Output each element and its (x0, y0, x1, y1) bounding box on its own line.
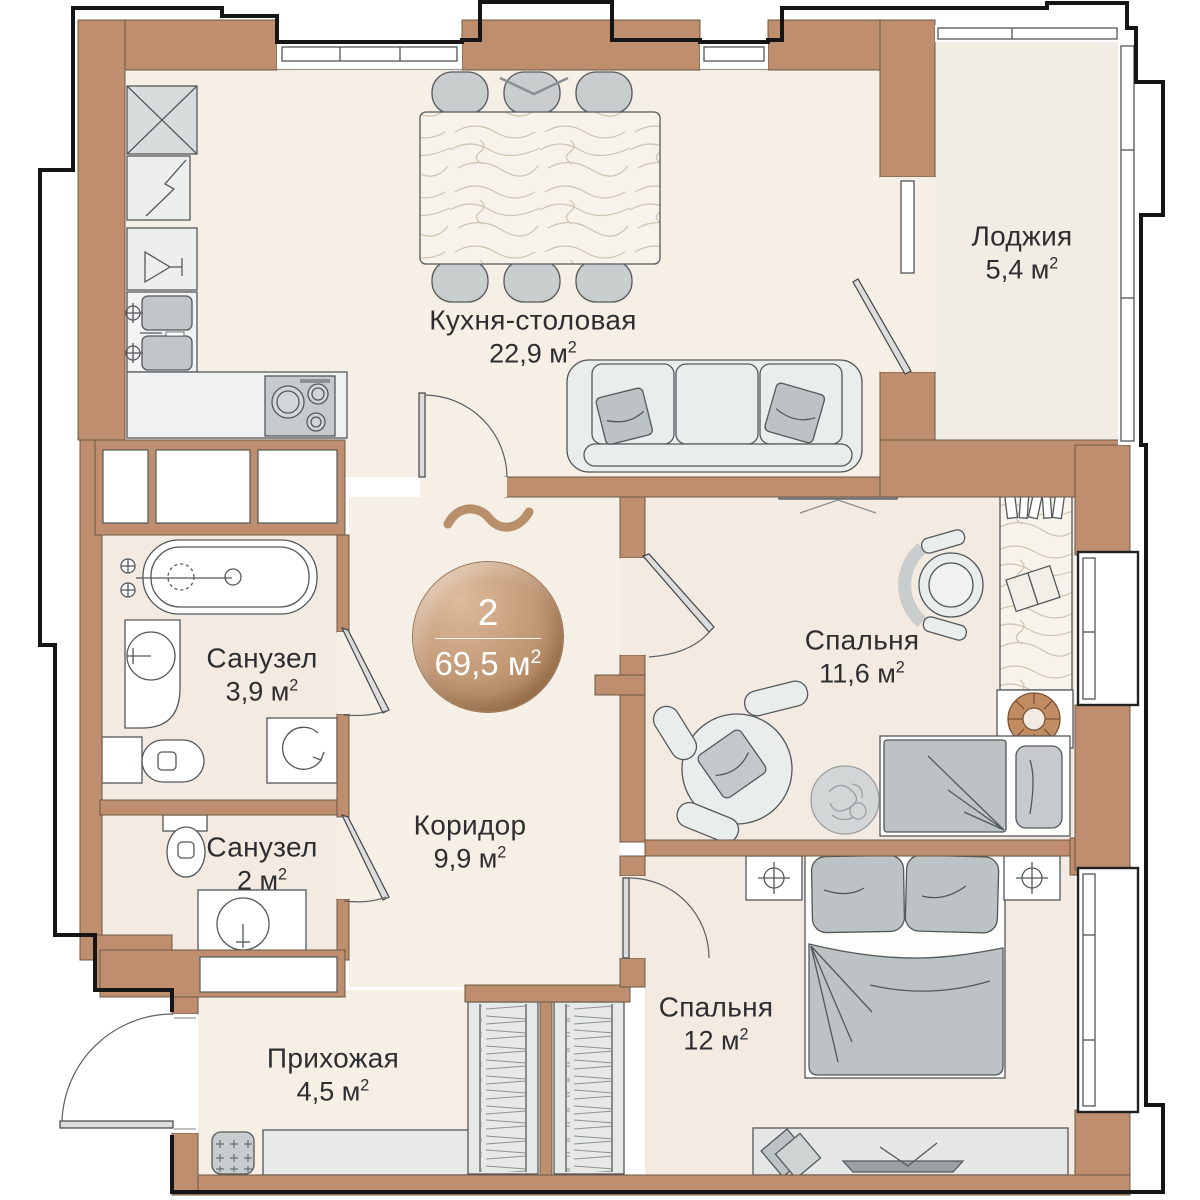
desk (1000, 490, 1072, 690)
room-area: 2 м2 (206, 865, 317, 898)
bench (263, 1130, 500, 1175)
kitchen-sink (123, 292, 197, 372)
sofa (567, 360, 862, 472)
wardrobe (468, 1002, 538, 1174)
round-rug (811, 766, 879, 834)
toilet-bathroom1 (102, 737, 204, 783)
badge-divider (435, 638, 541, 639)
room-label-corridor: Коридор 9,9 м2 (414, 808, 527, 875)
room-name: Лоджия (971, 219, 1072, 253)
room-name: Санузел (206, 641, 317, 675)
total-area-badge: 2 69,5 м2 (413, 562, 563, 712)
wardrobe (554, 1002, 624, 1174)
bedroom2-window (1078, 868, 1138, 1112)
room-label-bathroom1: Санузел 3,9 м2 (206, 641, 317, 708)
room-label-bathroom2: Санузел 2 м2 (206, 830, 317, 897)
fridge (127, 156, 190, 220)
small-top-window (700, 42, 768, 70)
washing-machine (267, 718, 337, 783)
double-bed (805, 848, 1005, 1078)
loggia-glazing-right (1118, 42, 1137, 445)
room-area: 12 м2 (659, 1025, 774, 1058)
dishwasher-cabinet (127, 228, 197, 290)
floor-plan-canvas (0, 0, 1200, 1200)
kitchen-window (277, 42, 462, 70)
dining-table (420, 72, 660, 302)
entry-door (60, 1014, 198, 1133)
dresser-tv-stand (753, 1128, 1068, 1179)
room-name: Спальня (805, 623, 920, 657)
room-area: 5,4 м2 (971, 254, 1072, 287)
rooms-count: 2 (478, 594, 499, 631)
bathroom1-sink (125, 620, 180, 728)
room-area: 4,5 м2 (267, 1076, 399, 1109)
room-label-loggia: Лоджия 5,4 м2 (971, 219, 1072, 286)
room-label-kitchen: Кухня-столовая 22,9 м2 (429, 303, 636, 370)
room-area: 22,9 м2 (429, 338, 636, 371)
room-name: Прихожая (267, 1041, 399, 1075)
single-bed (880, 736, 1070, 836)
room-area: 9,9 м2 (414, 843, 527, 876)
room-name: Кухня-столовая (429, 303, 636, 337)
stove (265, 376, 335, 436)
apartment-floor-plan: Кухня-столовая 22,9 м2 Лоджия 5,4 м2 Спа… (0, 0, 1200, 1200)
room-area: 11,6 м2 (805, 658, 920, 691)
total-area: 69,5 м2 (434, 647, 541, 680)
room-name: Спальня (659, 990, 774, 1024)
room-label-bedroom2: Спальня 12 м2 (659, 990, 774, 1057)
room-name: Коридор (414, 808, 527, 842)
nightstand (1004, 856, 1060, 900)
room-name: Санузел (206, 830, 317, 864)
loggia-glazing-top (935, 25, 1120, 42)
bedroom1-window (1078, 552, 1138, 705)
room-label-hallway: Прихожая 4,5 м2 (267, 1041, 399, 1108)
room-area: 3,9 м2 (206, 676, 317, 709)
nightstand (746, 856, 802, 900)
door-mat (212, 1132, 254, 1174)
kitchen-loggia-window (880, 177, 935, 277)
room-label-bedroom1: Спальня 11,6 м2 (805, 623, 920, 690)
tall-cabinet (127, 86, 197, 154)
